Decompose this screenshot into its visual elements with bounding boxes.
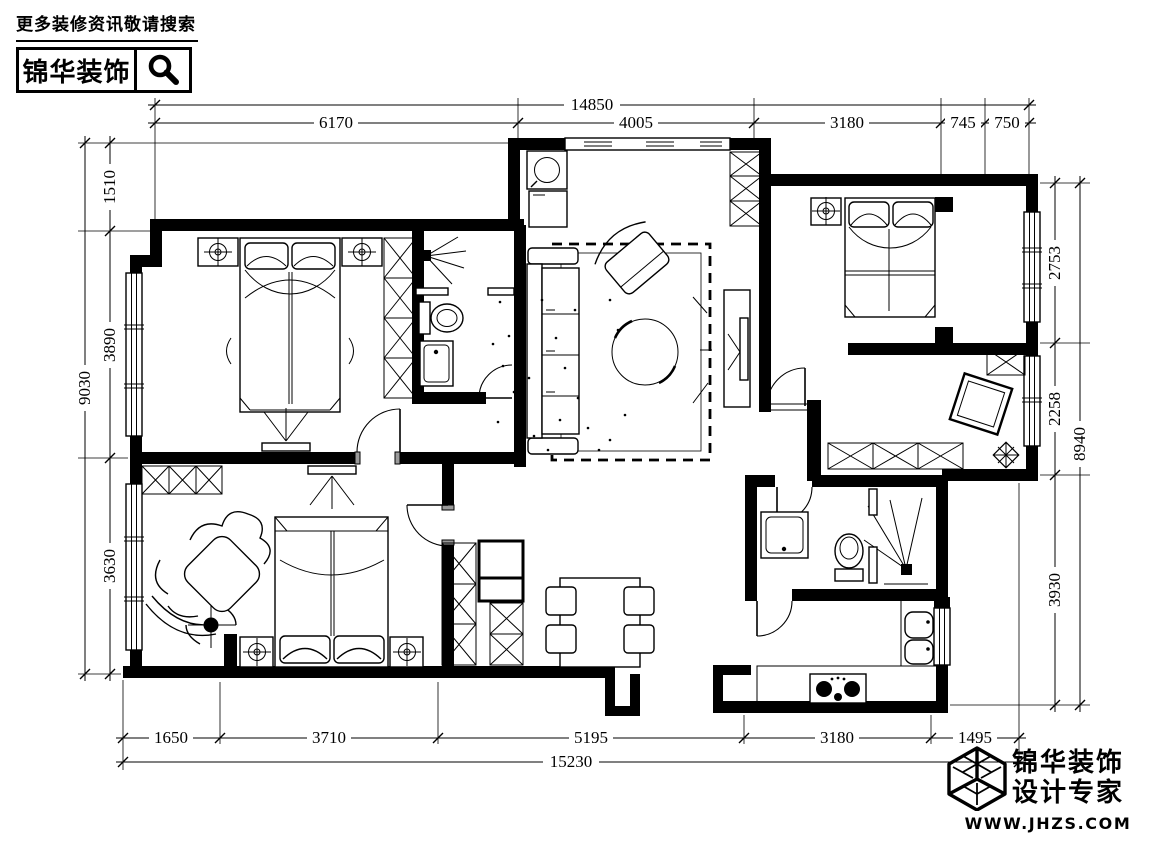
room-bedroom2	[811, 197, 1025, 469]
shower-icon	[420, 237, 466, 284]
wardrobe-study	[828, 443, 963, 469]
svg-text:3710: 3710	[312, 728, 346, 747]
dim-label: 1510	[100, 164, 119, 210]
dim-right: 2753 2258 3930 8940	[1045, 176, 1089, 712]
floor-plan: 14850 6170 4005 3180 745 750 1650 3710	[0, 0, 1158, 841]
svg-text:5195: 5195	[574, 728, 608, 747]
bed-double-bedroom1	[227, 238, 354, 412]
window-entry-top	[565, 138, 730, 150]
air-conditioner-bedroom1	[262, 408, 310, 451]
svg-text:1510: 1510	[100, 170, 119, 204]
dim-label-right-overall: 8940	[1070, 421, 1089, 467]
room-bedroom1	[198, 238, 416, 451]
entry-cabinet	[529, 191, 567, 227]
window-bedroom1-left	[124, 273, 144, 436]
door-bedroom1	[355, 409, 400, 464]
air-conditioner-master	[308, 466, 356, 509]
toilet-icon	[835, 534, 863, 581]
toilet-icon	[419, 302, 463, 334]
sink-icon	[420, 341, 453, 386]
wardrobe-bedroom1	[384, 238, 416, 398]
bed-double-bedroom2	[845, 198, 935, 317]
stove-icon	[810, 674, 866, 703]
dim-label: 750	[989, 113, 1025, 132]
svg-text:6170: 6170	[319, 113, 353, 132]
washing-machine-icon	[527, 151, 567, 189]
svg-text:14850: 14850	[571, 95, 614, 114]
footer-brand-line1: 锦华装饰	[1012, 748, 1124, 778]
refrigerator	[479, 541, 523, 601]
dim-bottom: 1650 3710 5195 3180 1495 15230	[116, 728, 1026, 771]
svg-text:8940: 8940	[1070, 427, 1089, 461]
desk-chair	[950, 373, 1012, 434]
dim-label: 2753	[1045, 240, 1064, 286]
door-bedroom2-hall	[767, 368, 807, 410]
svg-text:4005: 4005	[619, 113, 653, 132]
dim-label-left-overall: 9030	[75, 365, 94, 411]
svg-text:3180: 3180	[830, 113, 864, 132]
kitchen-sink-icon	[905, 612, 933, 664]
dim-label: 3180	[825, 113, 869, 132]
cube-logo-icon	[942, 745, 1012, 811]
svg-text:745: 745	[950, 113, 976, 132]
dim-label: 3890	[100, 322, 119, 368]
armchair	[589, 214, 676, 299]
room-bathroom-right	[761, 489, 928, 584]
room-bathroom-top	[416, 237, 514, 386]
window-master-left	[124, 484, 144, 650]
svg-text:3930: 3930	[1045, 573, 1064, 607]
sofa	[527, 248, 579, 454]
dim-label: 1650	[149, 728, 193, 747]
svg-text:1650: 1650	[154, 728, 188, 747]
window-kitchen-right	[934, 608, 950, 665]
room-living	[492, 214, 750, 460]
wardrobe-master	[142, 466, 222, 494]
dim-top: 14850 6170 4005 3180 745 750	[148, 95, 1036, 132]
footer-website: WWW.JHZS.COM	[942, 814, 1154, 833]
door-master	[407, 505, 454, 546]
svg-text:750: 750	[994, 113, 1020, 132]
room-kitchen	[757, 597, 937, 703]
svg-text:3630: 3630	[100, 549, 119, 583]
room-dining	[442, 541, 654, 667]
svg-text:2753: 2753	[1045, 246, 1064, 280]
dim-label: 3630	[100, 543, 119, 589]
plant-icon	[993, 442, 1018, 467]
svg-text:3180: 3180	[820, 728, 854, 747]
dim-label-top-overall: 14850	[564, 95, 620, 114]
dim-label: 4005	[614, 113, 658, 132]
dim-label-bottom-overall: 15230	[543, 752, 599, 771]
dim-label: 3180	[815, 728, 859, 747]
svg-text:15230: 15230	[550, 752, 593, 771]
dim-label: 6170	[314, 113, 358, 132]
shoe-cabinet	[730, 152, 762, 226]
dim-left: 9030 1510 3890 3630	[75, 136, 119, 681]
round-rug	[612, 319, 678, 385]
dim-label: 2258	[1045, 386, 1064, 432]
door-kitchen	[757, 601, 792, 636]
room-master-bedroom	[142, 466, 423, 667]
room-entry-balcony	[527, 151, 762, 227]
svg-text:2258: 2258	[1045, 392, 1064, 426]
dim-label: 745	[945, 113, 981, 132]
page: 更多装修资讯敬请搜索 锦华装饰	[0, 0, 1158, 841]
window-bedroom2-right	[1022, 212, 1042, 322]
tv-wall	[724, 290, 750, 407]
cabinet-dining-lower	[490, 603, 523, 665]
dining-table	[546, 578, 654, 667]
dim-label: 3930	[1045, 567, 1064, 613]
plant-chaise	[146, 512, 270, 636]
sink-icon	[761, 512, 808, 558]
footer-logo: 锦华装饰 设计专家 WWW.JHZS.COM	[942, 745, 1154, 833]
dim-label: 5195	[569, 728, 613, 747]
footer-brand-line2: 设计专家	[1012, 778, 1124, 808]
bed-double-master	[275, 517, 388, 667]
dim-label: 3710	[307, 728, 351, 747]
svg-text:9030: 9030	[75, 371, 94, 405]
svg-text:3890: 3890	[100, 328, 119, 362]
